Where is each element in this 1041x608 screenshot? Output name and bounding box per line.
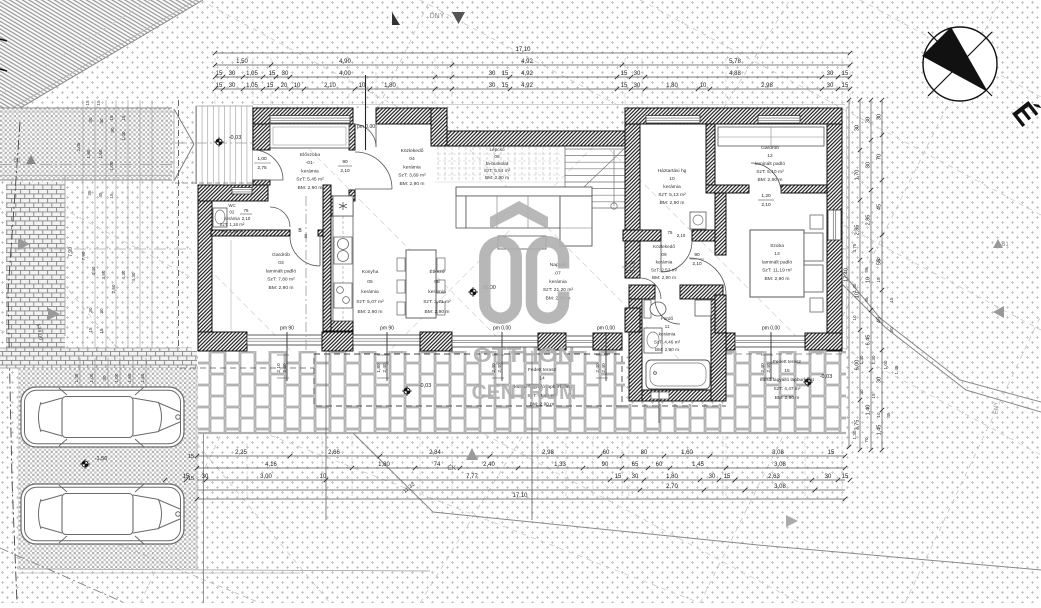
- svg-text:15: 15: [109, 115, 114, 121]
- svg-text:2,84: 2,84: [429, 450, 441, 456]
- svg-text:BM: 2,90 m: BM: 2,90 m: [297, 185, 322, 191]
- svg-text:15: 15: [871, 393, 876, 399]
- svg-text:60: 60: [603, 450, 610, 456]
- svg-text:1,60: 1,60: [140, 373, 145, 382]
- svg-text:SzT: 3,71 m²: SzT: 3,71 m²: [423, 299, 451, 305]
- svg-text:1,00: 1,00: [257, 156, 267, 162]
- svg-text:15: 15: [269, 71, 276, 77]
- svg-text:90: 90: [342, 159, 348, 165]
- svg-text:30: 30: [202, 474, 209, 480]
- svg-text:kerámia: kerámia: [224, 216, 240, 221]
- svg-text:90: 90: [602, 462, 609, 468]
- svg-text:1,70: 1,70: [855, 170, 861, 181]
- svg-text:35: 35: [87, 190, 92, 196]
- svg-text:15: 15: [502, 83, 509, 89]
- svg-text:laminált padló: laminált padló: [266, 268, 296, 274]
- svg-text:4,92: 4,92: [521, 71, 533, 77]
- svg-text:10: 10: [320, 474, 327, 480]
- svg-text:BM: 2,90 m: BM: 2,90 m: [764, 276, 789, 282]
- svg-text:10: 10: [852, 315, 857, 321]
- svg-text:30: 30: [634, 83, 641, 89]
- svg-text:2,40: 2,40: [601, 363, 607, 373]
- svg-text:45: 45: [98, 192, 103, 198]
- svg-text:BM: 2,90 m: BM: 2,90 m: [357, 309, 382, 315]
- svg-text:SzT: 5,10 m²: SzT: 5,10 m²: [756, 169, 784, 175]
- svg-text:2,40: 2,40: [382, 363, 388, 373]
- svg-text:30: 30: [99, 118, 104, 124]
- svg-text:30: 30: [889, 327, 894, 333]
- svg-text:1,45: 1,45: [877, 425, 883, 436]
- svg-text:45: 45: [877, 204, 883, 210]
- svg-text:SzT: 4,46 m²: SzT: 4,46 m²: [654, 339, 681, 344]
- svg-text:2,10: 2,10: [340, 168, 350, 174]
- svg-text:15: 15: [842, 474, 849, 480]
- svg-text:15: 15: [188, 476, 194, 482]
- svg-text:4,30: 4,30: [131, 272, 136, 281]
- svg-text:17,10: 17,10: [512, 493, 528, 499]
- svg-text:kerámia: kerámia: [428, 289, 446, 295]
- svg-text:2,40: 2,40: [760, 363, 766, 373]
- svg-text:1,80: 1,80: [376, 363, 382, 373]
- svg-text:06: 06: [434, 279, 440, 285]
- svg-text:15: 15: [621, 83, 628, 89]
- svg-text:1,05: 1,05: [246, 71, 258, 77]
- svg-text:Háztartási hg: Háztartási hg: [658, 168, 687, 174]
- svg-text:pm 0,00: pm 0,00: [597, 326, 615, 332]
- svg-text:15: 15: [88, 327, 93, 333]
- svg-text:1,80: 1,80: [384, 83, 396, 89]
- svg-text:10: 10: [294, 83, 301, 89]
- svg-text:2,40: 2,40: [766, 363, 772, 373]
- svg-text:BM: 2,90 m: BM: 2,90 m: [757, 177, 782, 183]
- svg-text:-1,56: -1,56: [95, 456, 108, 462]
- svg-text:2,10: 2,10: [242, 216, 251, 221]
- svg-text:15: 15: [842, 83, 849, 89]
- svg-text:BM: 2,90 m: BM: 2,90 m: [775, 395, 800, 401]
- svg-text:15: 15: [188, 454, 194, 460]
- svg-text:kerámia: kerámia: [403, 164, 421, 170]
- svg-text:3,00: 3,00: [260, 474, 272, 480]
- svg-text:4,88: 4,88: [729, 71, 741, 77]
- svg-text:1,40: 1,40: [866, 405, 872, 416]
- svg-text:2,10: 2,10: [324, 83, 336, 89]
- svg-text:55: 55: [864, 267, 869, 273]
- svg-text:CENTRUM: CENTRUM: [472, 381, 577, 404]
- svg-text:11: 11: [665, 324, 670, 329]
- svg-text:30: 30: [489, 83, 496, 89]
- svg-text:2,10: 2,10: [761, 202, 771, 208]
- svg-text:BM: 2,90 m: BM: 2,90 m: [655, 347, 679, 352]
- svg-text:45: 45: [864, 297, 869, 303]
- svg-text:kerámia: kerámia: [549, 279, 567, 285]
- svg-text:20: 20: [281, 83, 288, 89]
- svg-text:B1: B1: [13, 158, 21, 164]
- svg-text:WC: WC: [228, 203, 235, 208]
- svg-text:Előszoba: Előszoba: [300, 152, 320, 158]
- svg-text:SzT: 11,19 m²: SzT: 11,19 m²: [762, 268, 792, 274]
- svg-text:Fürdő: Fürdő: [661, 316, 674, 321]
- svg-text:2,66: 2,66: [328, 450, 340, 456]
- svg-text:ÉK: ÉK: [448, 465, 456, 472]
- svg-text:04: 04: [409, 156, 415, 162]
- svg-text:30: 30: [709, 474, 716, 480]
- svg-text:30: 30: [282, 71, 289, 77]
- svg-text:70: 70: [877, 154, 883, 160]
- svg-text:60: 60: [656, 462, 663, 468]
- svg-text:2,40: 2,40: [483, 462, 495, 468]
- svg-text:13: 13: [774, 251, 780, 257]
- svg-text:SzT: 7,80 m²: SzT: 7,80 m²: [267, 277, 295, 283]
- svg-text:3,08: 3,08: [772, 450, 784, 456]
- svg-text:SzT: 5,13 m²: SzT: 5,13 m²: [658, 192, 686, 198]
- svg-text:1,00: 1,00: [114, 373, 119, 382]
- svg-text:3,75: 3,75: [855, 420, 861, 431]
- svg-text:80: 80: [641, 450, 648, 456]
- svg-text:laminált padló: laminált padló: [755, 161, 785, 167]
- svg-text:2,63: 2,63: [768, 474, 780, 480]
- svg-text:2,10: 2,10: [276, 363, 282, 373]
- svg-text:2,85: 2,85: [866, 215, 872, 226]
- svg-text:09: 09: [661, 252, 667, 257]
- svg-text:30: 30: [88, 117, 93, 123]
- svg-text:-0,03: -0,03: [229, 135, 242, 141]
- svg-text:pm 90: pm 90: [380, 326, 394, 332]
- svg-text:OTTHON: OTTHON: [473, 344, 575, 367]
- svg-text:1,60: 1,60: [86, 149, 91, 158]
- svg-text:BM: 2,90 m: BM: 2,90 m: [424, 309, 449, 315]
- svg-text:10: 10: [669, 176, 675, 182]
- svg-text:3,08: 3,08: [774, 462, 786, 468]
- svg-text:1,00: 1,00: [109, 161, 114, 170]
- svg-text:4,30: 4,30: [121, 270, 126, 279]
- svg-text:15: 15: [876, 277, 881, 283]
- svg-text:15: 15: [889, 297, 894, 303]
- svg-text:15: 15: [828, 450, 835, 456]
- svg-text:4,16: 4,16: [265, 462, 277, 468]
- svg-text:B1: B1: [1001, 242, 1009, 248]
- svg-text:2,75: 2,75: [257, 165, 267, 171]
- svg-text:15: 15: [621, 71, 628, 77]
- svg-text:1,30: 1,30: [859, 355, 864, 364]
- svg-text:3,50: 3,50: [101, 270, 106, 279]
- svg-text:-0,03: -0,03: [820, 374, 833, 380]
- svg-text:4,92: 4,92: [521, 59, 533, 65]
- svg-text:30: 30: [876, 257, 881, 263]
- svg-text:1,20: 1,20: [761, 193, 771, 199]
- svg-text:fa-burkolat: fa-burkolat: [486, 161, 509, 166]
- svg-text:6,45: 6,45: [866, 335, 872, 346]
- svg-text:3,08: 3,08: [774, 484, 786, 490]
- svg-text:30: 30: [827, 71, 834, 77]
- svg-text:1,50: 1,50: [236, 59, 248, 65]
- svg-text:SzT: 5,07 m²: SzT: 5,07 m²: [356, 299, 384, 305]
- svg-text:Közlekedő: Közlekedő: [653, 244, 675, 249]
- svg-text:5,78: 5,78: [729, 59, 741, 65]
- svg-text:-0,03: -0,03: [419, 383, 432, 389]
- svg-text:1,00: 1,00: [89, 373, 94, 382]
- svg-text:02: 02: [230, 209, 235, 214]
- svg-text:30: 30: [877, 114, 883, 120]
- svg-text:30: 30: [634, 71, 641, 77]
- svg-text:SzT: 2,52 m²: SzT: 2,52 m²: [651, 267, 678, 272]
- svg-text:SzT: 4,47 m²: SzT: 4,47 m²: [774, 386, 801, 392]
- svg-text:17,10: 17,10: [515, 47, 531, 53]
- svg-text:45: 45: [877, 317, 883, 323]
- svg-text:70: 70: [864, 437, 869, 443]
- svg-text:75: 75: [668, 230, 673, 235]
- svg-text:4,92: 4,92: [521, 83, 533, 89]
- svg-text:4,40: 4,40: [91, 266, 96, 275]
- svg-text:Konyha: Konyha: [362, 269, 379, 275]
- svg-text:pm 0,00: pm 0,00: [493, 326, 511, 332]
- svg-text:1,60: 1,60: [98, 149, 103, 158]
- svg-text:Szoba: Szoba: [770, 243, 784, 249]
- svg-text:30: 30: [825, 474, 832, 480]
- svg-text:15: 15: [842, 71, 849, 77]
- svg-text:1,40: 1,40: [852, 283, 857, 292]
- svg-text:10: 10: [700, 83, 707, 89]
- svg-text:15: 15: [784, 368, 790, 374]
- svg-text:BM: 2,90 m: BM: 2,90 m: [659, 200, 684, 206]
- svg-text:2,05: 2,05: [76, 142, 81, 151]
- svg-text:kerámia: kerámia: [663, 184, 681, 190]
- svg-text:30: 30: [632, 474, 639, 480]
- svg-text:15: 15: [96, 100, 101, 106]
- svg-text:10: 10: [866, 277, 872, 283]
- svg-text:Közlekedő: Közlekedő: [401, 148, 424, 154]
- svg-text:75: 75: [244, 208, 249, 213]
- svg-text:Lépcső: Lépcső: [489, 147, 505, 152]
- svg-text:15: 15: [615, 474, 622, 480]
- svg-text:15: 15: [216, 83, 223, 89]
- svg-text:SzT: 5,54 m²: SzT: 5,54 m²: [484, 168, 511, 173]
- svg-text:1,00: 1,00: [883, 360, 888, 369]
- svg-text:1,60: 1,60: [127, 373, 132, 382]
- svg-text:2,10: 2,10: [625, 269, 635, 275]
- svg-text:1,45: 1,45: [74, 373, 79, 382]
- svg-text:80: 80: [303, 233, 308, 238]
- svg-text:2,98: 2,98: [761, 83, 773, 89]
- svg-text:SzT: 3,69 m²: SzT: 3,69 m²: [398, 173, 426, 179]
- svg-text:kerámia: kerámia: [656, 260, 673, 265]
- svg-text:1,80: 1,80: [378, 462, 390, 468]
- svg-text:BM: 2,90 m: BM: 2,90 m: [399, 181, 424, 187]
- svg-text:15: 15: [216, 71, 223, 77]
- svg-text:ÉNY: ÉNY: [993, 402, 1000, 414]
- svg-text:15: 15: [502, 71, 509, 77]
- svg-text:08: 08: [494, 154, 500, 159]
- svg-text:30: 30: [866, 162, 872, 168]
- svg-text:Gardrób: Gardrób: [272, 252, 290, 258]
- svg-text:2,40: 2,40: [282, 363, 288, 373]
- svg-text:05: 05: [367, 279, 373, 285]
- svg-text:SzT: 1,18 m²: SzT: 1,18 m²: [220, 222, 245, 227]
- svg-text:30: 30: [877, 377, 883, 383]
- svg-text:30: 30: [866, 117, 872, 123]
- svg-text:BM: 2,90 m: BM: 2,90 m: [485, 175, 509, 180]
- svg-text:-01-: -01-: [306, 160, 315, 166]
- svg-text:15: 15: [724, 474, 731, 480]
- svg-text:pm 0,00: pm 0,00: [762, 326, 780, 332]
- svg-text:1,80: 1,80: [666, 474, 678, 480]
- svg-text:15: 15: [85, 100, 90, 106]
- svg-text:kerámia: kerámia: [659, 332, 676, 337]
- svg-text:BM: 2,90 m: BM: 2,90 m: [221, 229, 244, 234]
- svg-text:15: 15: [121, 115, 126, 121]
- svg-text:1,45: 1,45: [894, 365, 899, 374]
- svg-text:4,90: 4,90: [339, 59, 351, 65]
- svg-text:1,45: 1,45: [692, 462, 704, 468]
- svg-text:1,80: 1,80: [666, 83, 678, 89]
- svg-text:30: 30: [827, 83, 834, 89]
- svg-text:30: 30: [99, 308, 104, 314]
- svg-text:17,40: 17,40: [844, 268, 850, 282]
- svg-text:45: 45: [886, 412, 891, 418]
- svg-text:90: 90: [110, 127, 115, 133]
- svg-text:15: 15: [99, 328, 104, 334]
- svg-text:pm 0,00: pm 0,00: [357, 124, 375, 130]
- svg-text:2,10: 2,10: [692, 261, 702, 267]
- svg-text:BM: 2,90 m: BM: 2,90 m: [268, 285, 293, 291]
- svg-text:2,98: 2,98: [542, 450, 554, 456]
- svg-text:kerámia: kerámia: [301, 168, 319, 174]
- svg-text:1,00: 1,00: [625, 260, 635, 266]
- svg-text:2,60: 2,60: [111, 284, 116, 293]
- svg-text:Gardrób: Gardrób: [761, 145, 779, 151]
- svg-text:1,30: 1,30: [871, 355, 876, 364]
- svg-text:03: 03: [278, 260, 284, 266]
- svg-text:4,00: 4,00: [339, 71, 351, 77]
- svg-text:1,40: 1,40: [121, 131, 126, 140]
- svg-text:3,75: 3,75: [852, 243, 857, 252]
- svg-text:15: 15: [109, 193, 114, 199]
- svg-text:10: 10: [359, 83, 366, 89]
- svg-text:07: 07: [555, 270, 561, 276]
- svg-text:30: 30: [859, 389, 864, 395]
- svg-text:12: 12: [767, 153, 773, 159]
- svg-text:7,77: 7,77: [466, 474, 478, 480]
- svg-text:7,90: 7,90: [68, 247, 74, 257]
- svg-text:7,90: 7,90: [81, 251, 86, 260]
- svg-text:90: 90: [694, 252, 700, 258]
- svg-text:10: 10: [876, 412, 881, 418]
- svg-text:DNY: DNY: [430, 13, 445, 20]
- svg-text:65: 65: [632, 462, 639, 468]
- svg-text:1,05: 1,05: [246, 83, 258, 89]
- svg-text:Fedett terasz: Fedett terasz: [528, 367, 557, 373]
- svg-text:15: 15: [267, 83, 274, 89]
- svg-text:2,10: 2,10: [677, 233, 686, 238]
- svg-text:1,30: 1,30: [852, 430, 857, 439]
- svg-text:30: 30: [229, 71, 236, 77]
- svg-text:30: 30: [489, 71, 496, 77]
- svg-text:külső fagyálló lapburkolat: külső fagyálló lapburkolat: [760, 377, 815, 383]
- svg-text:74: 74: [434, 462, 441, 468]
- svg-text:2,25: 2,25: [235, 450, 247, 456]
- svg-text:pm 90: pm 90: [280, 326, 294, 332]
- svg-text:30: 30: [229, 83, 236, 89]
- svg-text:1,60: 1,60: [681, 450, 693, 456]
- svg-text:1,33: 1,33: [554, 462, 566, 468]
- svg-text:BM: 2,90 m: BM: 2,90 m: [652, 275, 676, 280]
- svg-text:30: 30: [102, 375, 107, 381]
- svg-text:SzT: 5,45 m²: SzT: 5,45 m²: [296, 177, 324, 183]
- svg-text:30: 30: [88, 307, 93, 313]
- svg-text:Fedett terasz: Fedett terasz: [773, 359, 802, 365]
- svg-text:2,70: 2,70: [666, 484, 678, 490]
- svg-text:2,85: 2,85: [855, 225, 861, 236]
- svg-text:kerámia: kerámia: [361, 289, 379, 295]
- svg-text:laminált padló: laminált padló: [762, 259, 792, 265]
- svg-text:Étkező: Étkező: [430, 268, 445, 275]
- svg-text:2,40: 2,40: [595, 363, 601, 373]
- svg-text:30: 30: [855, 125, 861, 131]
